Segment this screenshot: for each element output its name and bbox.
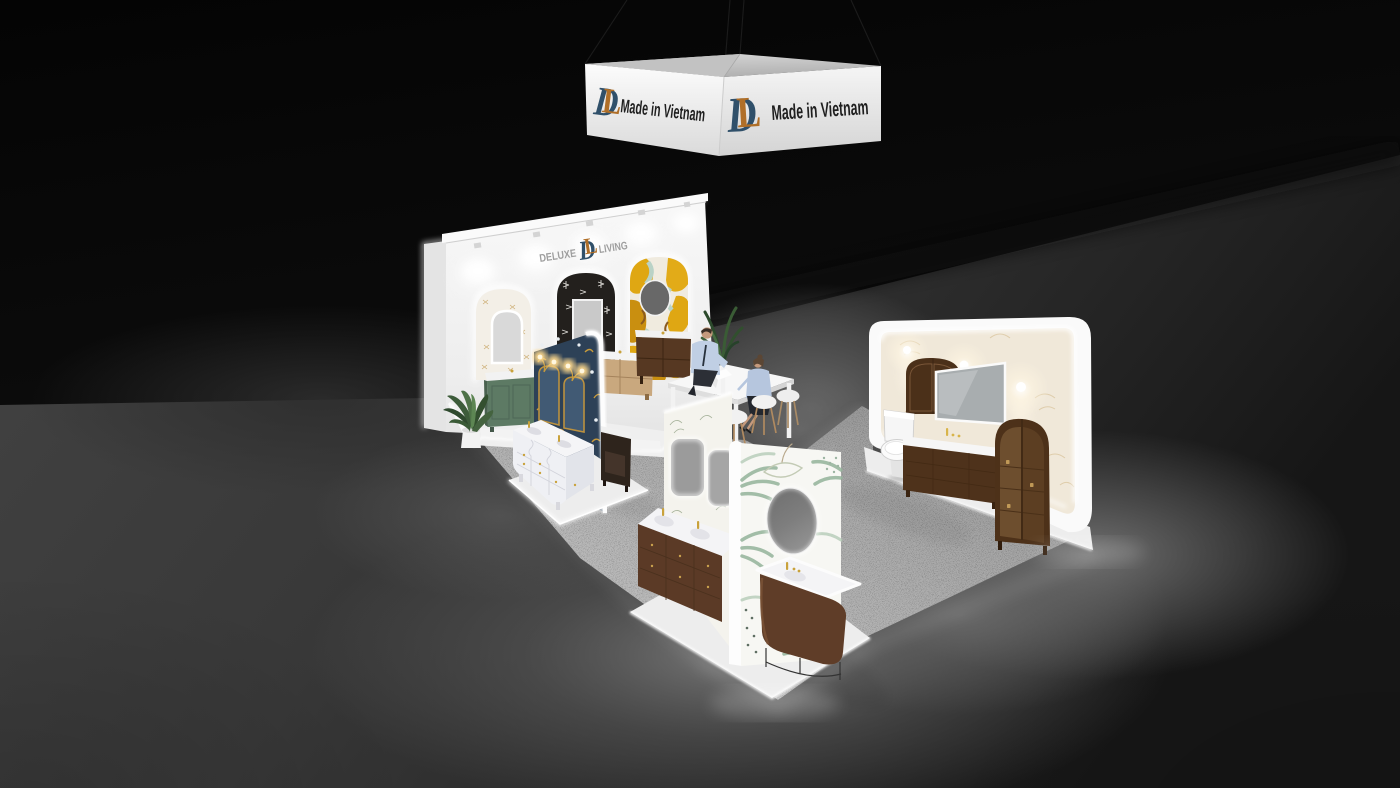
svg-text:L: L [735, 87, 762, 138]
